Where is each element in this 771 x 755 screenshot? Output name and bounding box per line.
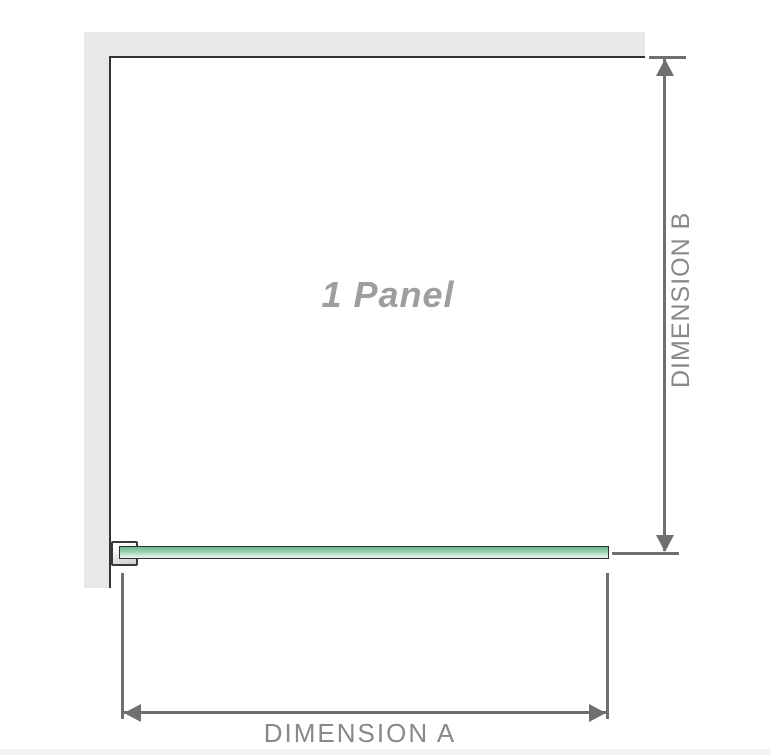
enclosure-left-edge bbox=[109, 56, 111, 588]
dimension-a-left-extension-line bbox=[121, 573, 124, 719]
wall-left bbox=[84, 32, 110, 588]
arrow-right-icon bbox=[589, 704, 606, 722]
wall-top bbox=[84, 32, 645, 58]
glass-panel bbox=[119, 546, 609, 559]
arrow-down-icon bbox=[656, 535, 674, 552]
page-bottom-strip bbox=[0, 749, 771, 755]
enclosure-top-edge bbox=[110, 56, 645, 58]
dimension-a-right-extension-line bbox=[606, 573, 609, 719]
panel-count-label: 1 Panel bbox=[288, 276, 488, 316]
dimension-b-bottom-tick bbox=[612, 552, 679, 555]
shower-panel-dimension-diagram: 1 Panel DIMENSION B DIMENSION A bbox=[0, 0, 771, 755]
arrow-left-icon bbox=[124, 704, 141, 722]
arrow-up-icon bbox=[656, 59, 674, 76]
dimension-b-label: DIMENSION B bbox=[668, 232, 694, 388]
dimension-a-line bbox=[124, 711, 606, 714]
dimension-b-line bbox=[663, 59, 666, 551]
dimension-a-label: DIMENSION A bbox=[230, 719, 490, 749]
